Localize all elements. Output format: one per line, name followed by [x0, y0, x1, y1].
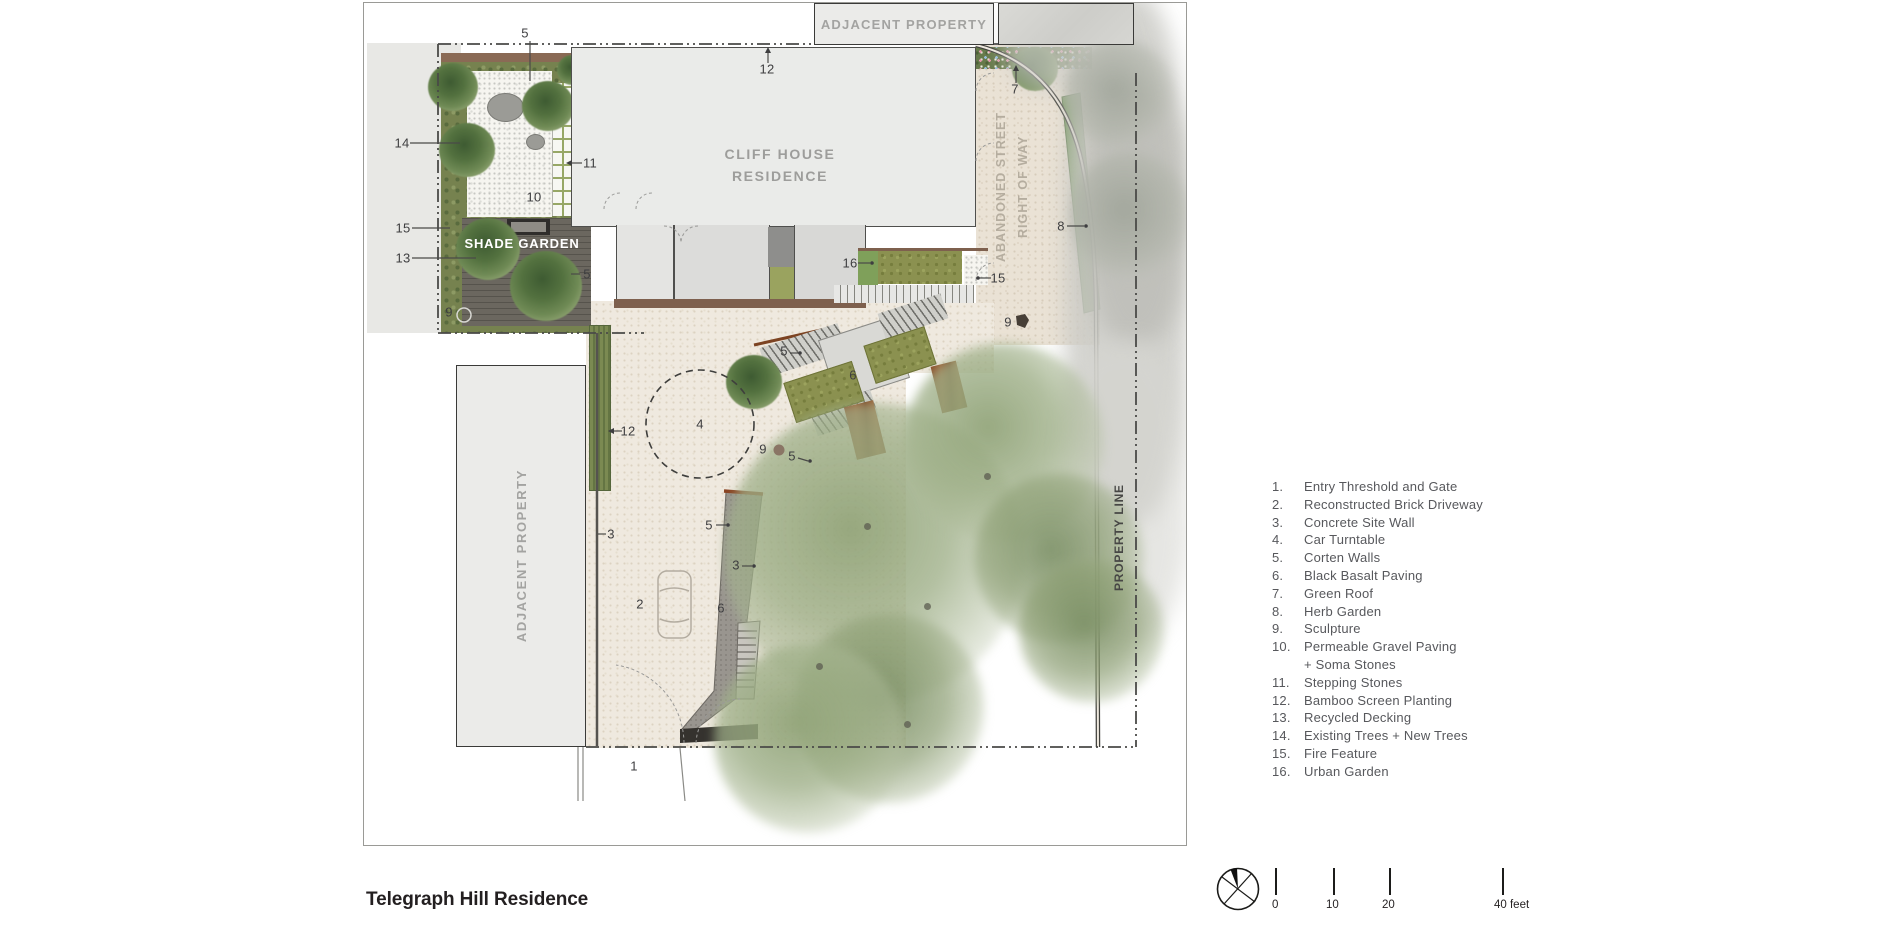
legend-item: 5. Corten Walls	[1272, 549, 1522, 567]
legend-item-text: Permeable Gravel Paving + Soma Stones	[1304, 638, 1457, 674]
sheet-title: Telegraph Hill Residence	[366, 889, 588, 911]
legend-item-number: 16.	[1272, 763, 1304, 781]
legend-item-number: 2.	[1272, 496, 1304, 514]
plan-callout: 10	[526, 190, 541, 205]
legend-item-text: Green Roof	[1304, 585, 1373, 603]
plan-callout: 16	[842, 256, 857, 271]
legend-item-text: Bamboo Screen Planting	[1304, 692, 1452, 710]
plan-callout: 5	[780, 344, 788, 359]
legend-item-number: 1.	[1272, 478, 1304, 496]
plan-callout: 15	[395, 221, 410, 236]
legend-item-number: 10.	[1272, 638, 1304, 674]
legend-item-number: 4.	[1272, 531, 1304, 549]
legend-item: 11. Stepping Stones	[1272, 674, 1522, 692]
legend-item-text: Corten Walls	[1304, 549, 1380, 567]
plan-callout: 3	[732, 558, 740, 573]
plan-callout: 5	[583, 267, 591, 282]
legend-item-text: Existing Trees + New Trees	[1304, 727, 1468, 745]
shade-garden-label: SHADE GARDEN	[452, 236, 592, 251]
legend-item-text: Urban Garden	[1304, 763, 1389, 781]
plan-callout: 14	[394, 136, 409, 151]
plan-callout: 5	[788, 449, 796, 464]
legend-item: 9. Sculpture	[1272, 620, 1522, 638]
plan-callout: 4	[696, 417, 704, 432]
legend-item-text: Car Turntable	[1304, 531, 1385, 549]
legend-item: 16. Urban Garden	[1272, 763, 1522, 781]
legend-item-number: 11.	[1272, 674, 1304, 692]
scale-tick	[1502, 868, 1504, 895]
legend-item: 6. Black Basalt Paving	[1272, 567, 1522, 585]
adjacent-property-top-box: ADJACENT PROPERTY	[814, 3, 994, 45]
legend-item: 14. Existing Trees + New Trees	[1272, 727, 1522, 745]
legend-item-text: Concrete Site Wall	[1304, 514, 1415, 532]
scale-label-40: 40 feet	[1494, 899, 1529, 911]
north-arrow-compass-icon	[1214, 866, 1262, 914]
abandoned-street-label-line1: ABANDONED STREET	[994, 99, 1008, 274]
cliff-house-label: CLIFF HOUSE RESIDENCE	[664, 143, 896, 188]
plan-callout: 9	[1004, 315, 1012, 330]
adjacent-property-top-label: ADJACENT PROPERTY	[821, 17, 987, 32]
legend-item-text: Entry Threshold and Gate	[1304, 478, 1457, 496]
adjacent-property-left-box: ADJACENT PROPERTY	[456, 365, 586, 747]
legend-item-number: 8.	[1272, 603, 1304, 621]
legend-item: 8. Herb Garden	[1272, 603, 1522, 621]
legend-item: 13. Recycled Decking	[1272, 709, 1522, 727]
legend-item: 7. Green Roof	[1272, 585, 1522, 603]
legend-item-number: 15.	[1272, 745, 1304, 763]
legend-item-text: Stepping Stones	[1304, 674, 1402, 692]
scale-label-20: 20	[1382, 899, 1395, 911]
legend-item: 15. Fire Feature	[1272, 745, 1522, 763]
plan-callout: 2	[636, 597, 644, 612]
legend-item-number: 14.	[1272, 727, 1304, 745]
legend-item-number: 5.	[1272, 549, 1304, 567]
legend-item: 1. Entry Threshold and Gate	[1272, 478, 1522, 496]
adjacent-property-left-label: ADJACENT PROPERTY	[514, 469, 529, 642]
legend: 1. Entry Threshold and Gate 2. Reconstru…	[1272, 478, 1522, 781]
scale-tick	[1275, 868, 1277, 895]
legend-item: 12. Bamboo Screen Planting	[1272, 692, 1522, 710]
scale-tick	[1333, 868, 1335, 895]
plan-callout: 15	[990, 271, 1005, 286]
legend-item-number: 6.	[1272, 567, 1304, 585]
plan-callout: 7	[1011, 82, 1019, 97]
plan-callout: 1	[630, 759, 638, 774]
scale-label-0: 0	[1272, 899, 1278, 911]
legend-item-text: Reconstructed Brick Driveway	[1304, 496, 1483, 514]
scale-tick	[1389, 868, 1391, 895]
property-line-label: PROPERTY LINE	[1112, 471, 1126, 591]
site-plan: ADJACENT PROPERTY ADJACENT PROPERTY CLIF…	[363, 2, 1187, 846]
legend-item-text: Herb Garden	[1304, 603, 1381, 621]
abandoned-street-label-line2: RIGHT OF WAY	[1016, 99, 1030, 274]
plan-callout: 9	[759, 442, 767, 457]
legend-item: 2. Reconstructed Brick Driveway	[1272, 496, 1522, 514]
plan-callout: 13	[395, 251, 410, 266]
legend-item: 3. Concrete Site Wall	[1272, 514, 1522, 532]
legend-item-number: 13.	[1272, 709, 1304, 727]
legend-item-text: Black Basalt Paving	[1304, 567, 1423, 585]
drawing-sheet: ADJACENT PROPERTY ADJACENT PROPERTY CLIF…	[0, 0, 1900, 927]
legend-item: 4. Car Turntable	[1272, 531, 1522, 549]
plan-callout: 6	[717, 601, 725, 616]
plan-callout: 8	[1057, 219, 1065, 234]
plan-callout: 9	[445, 305, 453, 320]
scale-label-10: 10	[1326, 899, 1339, 911]
legend-item-text: Fire Feature	[1304, 745, 1377, 763]
legend-item-number: 3.	[1272, 514, 1304, 532]
plan-callout: 11	[583, 156, 597, 171]
legend-item-number: 12.	[1272, 692, 1304, 710]
plan-callout: 5	[521, 26, 529, 41]
legend-item-text: Recycled Decking	[1304, 709, 1411, 727]
legend-item-number: 7.	[1272, 585, 1304, 603]
plan-callout: 12	[620, 424, 635, 439]
legend-item-number: 9.	[1272, 620, 1304, 638]
legend-item-text: Sculpture	[1304, 620, 1361, 638]
plan-callout: 5	[705, 518, 713, 533]
legend-item: 10. Permeable Gravel Paving + Soma Stone…	[1272, 638, 1522, 674]
plan-callout: 12	[759, 62, 774, 77]
plan-callout: 6	[849, 368, 857, 383]
plan-callout: 3	[607, 527, 615, 542]
adjacent-building-box	[998, 3, 1134, 45]
